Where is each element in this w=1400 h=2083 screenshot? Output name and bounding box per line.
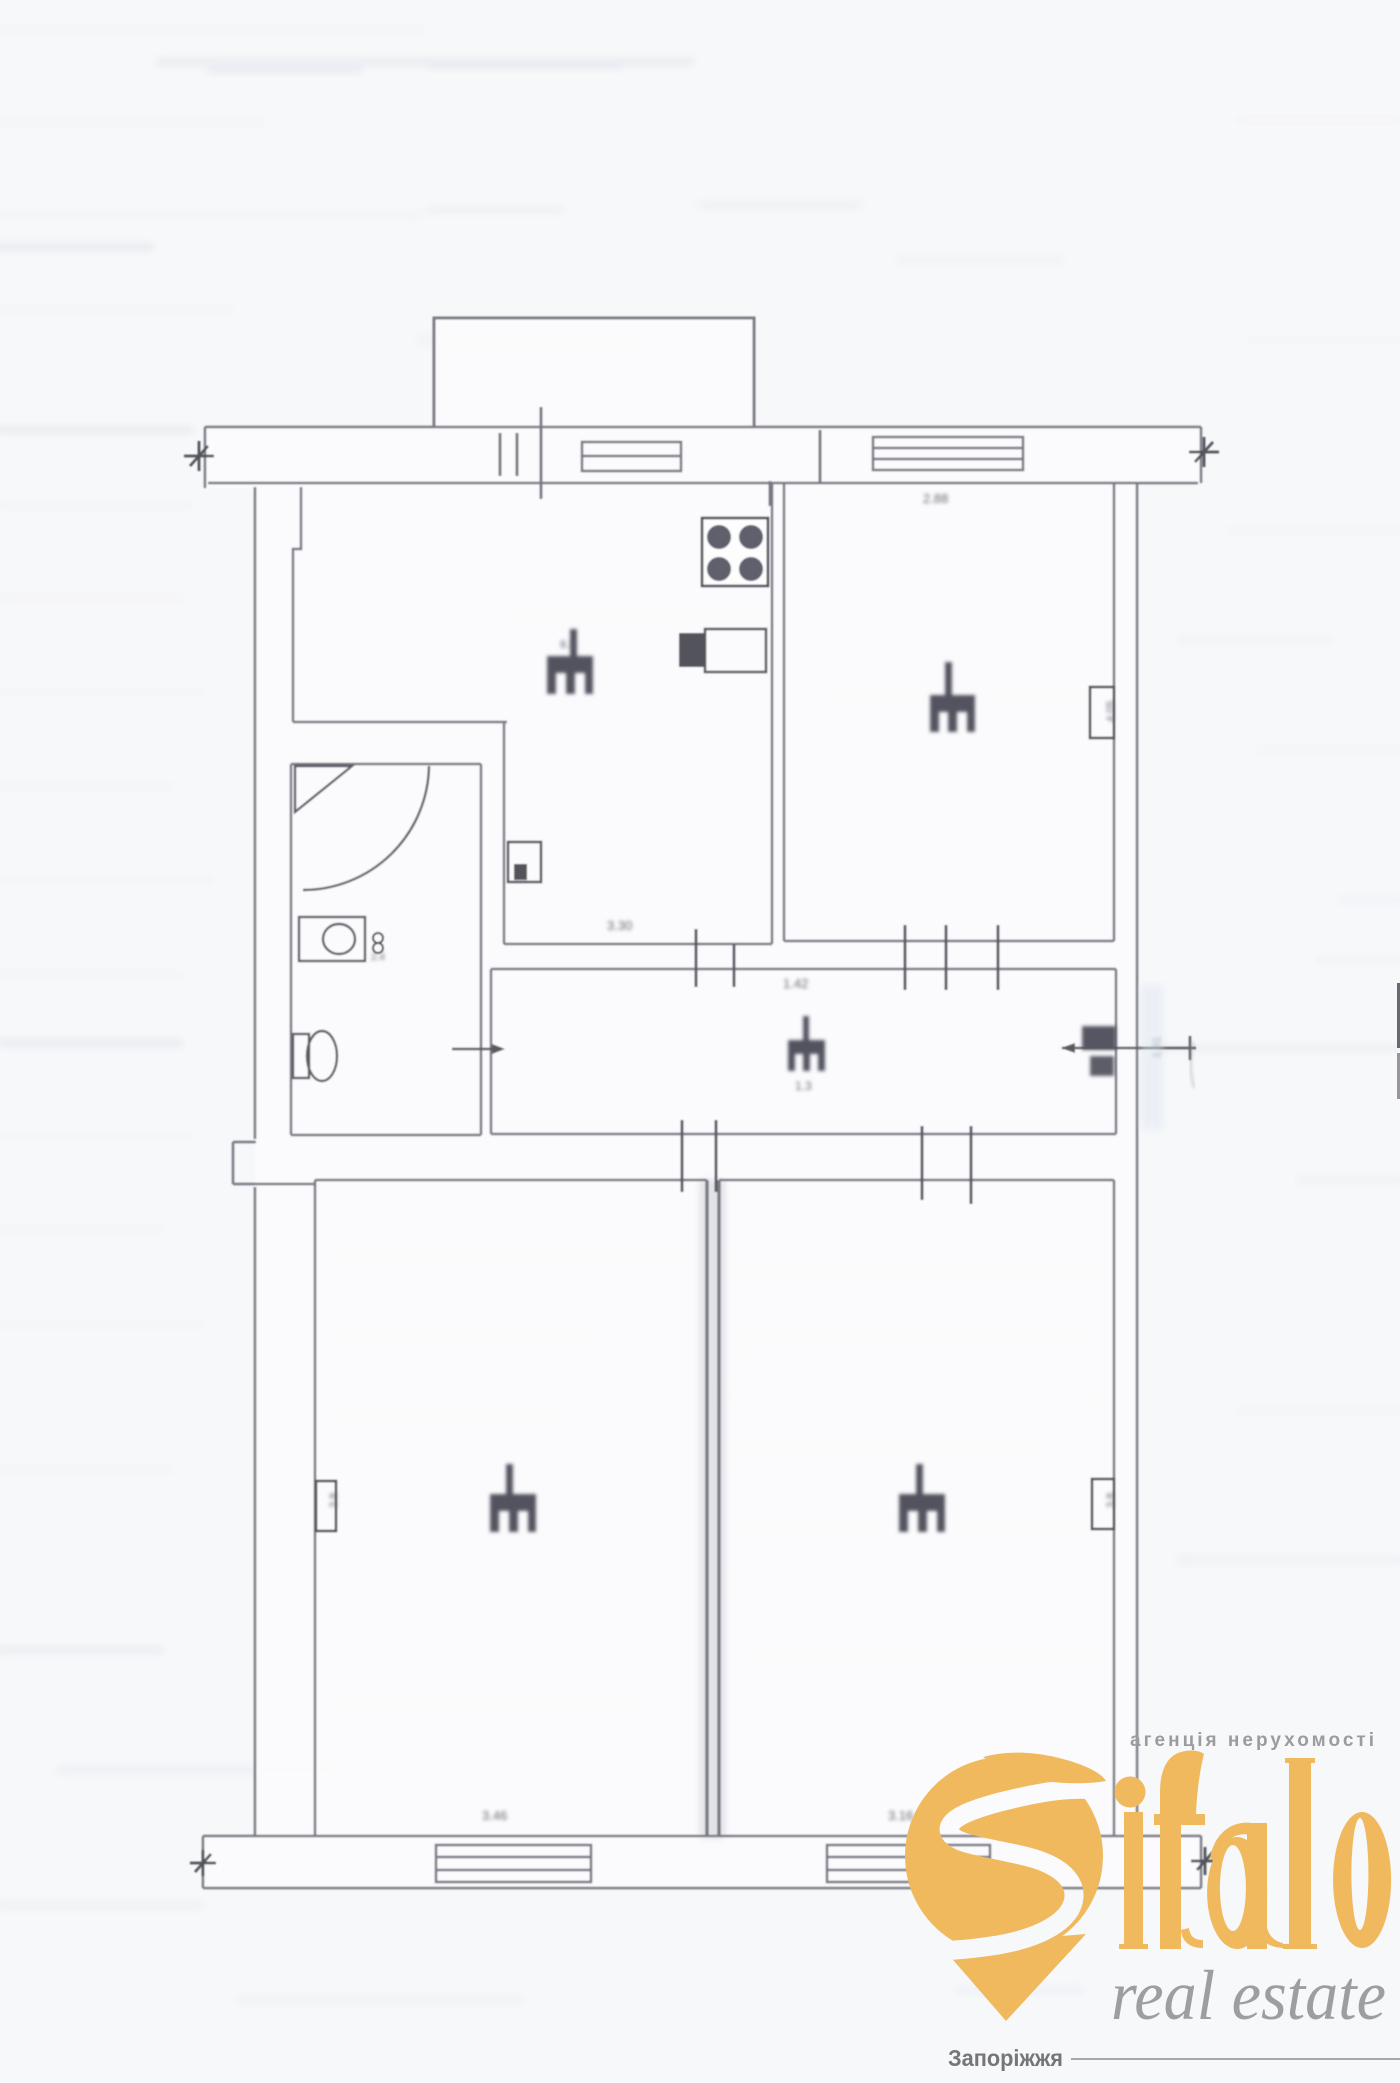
- svg-text:агенція нерухомості: агенція нерухомості: [1130, 1730, 1374, 1751]
- svg-text:3.8: 3.8: [1105, 1493, 1117, 1508]
- svg-text:3.30: 3.30: [607, 918, 632, 933]
- svg-text:3.46: 3.46: [482, 1808, 507, 1823]
- svg-text:8.3: 8.3: [560, 639, 575, 651]
- svg-text:real estate: real estate: [1111, 1957, 1386, 2035]
- svg-text:3.16: 3.16: [888, 1808, 913, 1823]
- svg-text:2.4: 2.4: [371, 952, 385, 963]
- svg-text:2.88: 2.88: [923, 491, 948, 506]
- svg-text:1.42: 1.42: [783, 976, 808, 991]
- svg-text:3.8: 3.8: [328, 1493, 340, 1508]
- svg-text:Запоріжжя: Запоріжжя: [948, 2045, 1063, 2071]
- svg-text:4.05: 4.05: [1105, 701, 1117, 722]
- svg-text:1.3: 1.3: [795, 1079, 812, 1093]
